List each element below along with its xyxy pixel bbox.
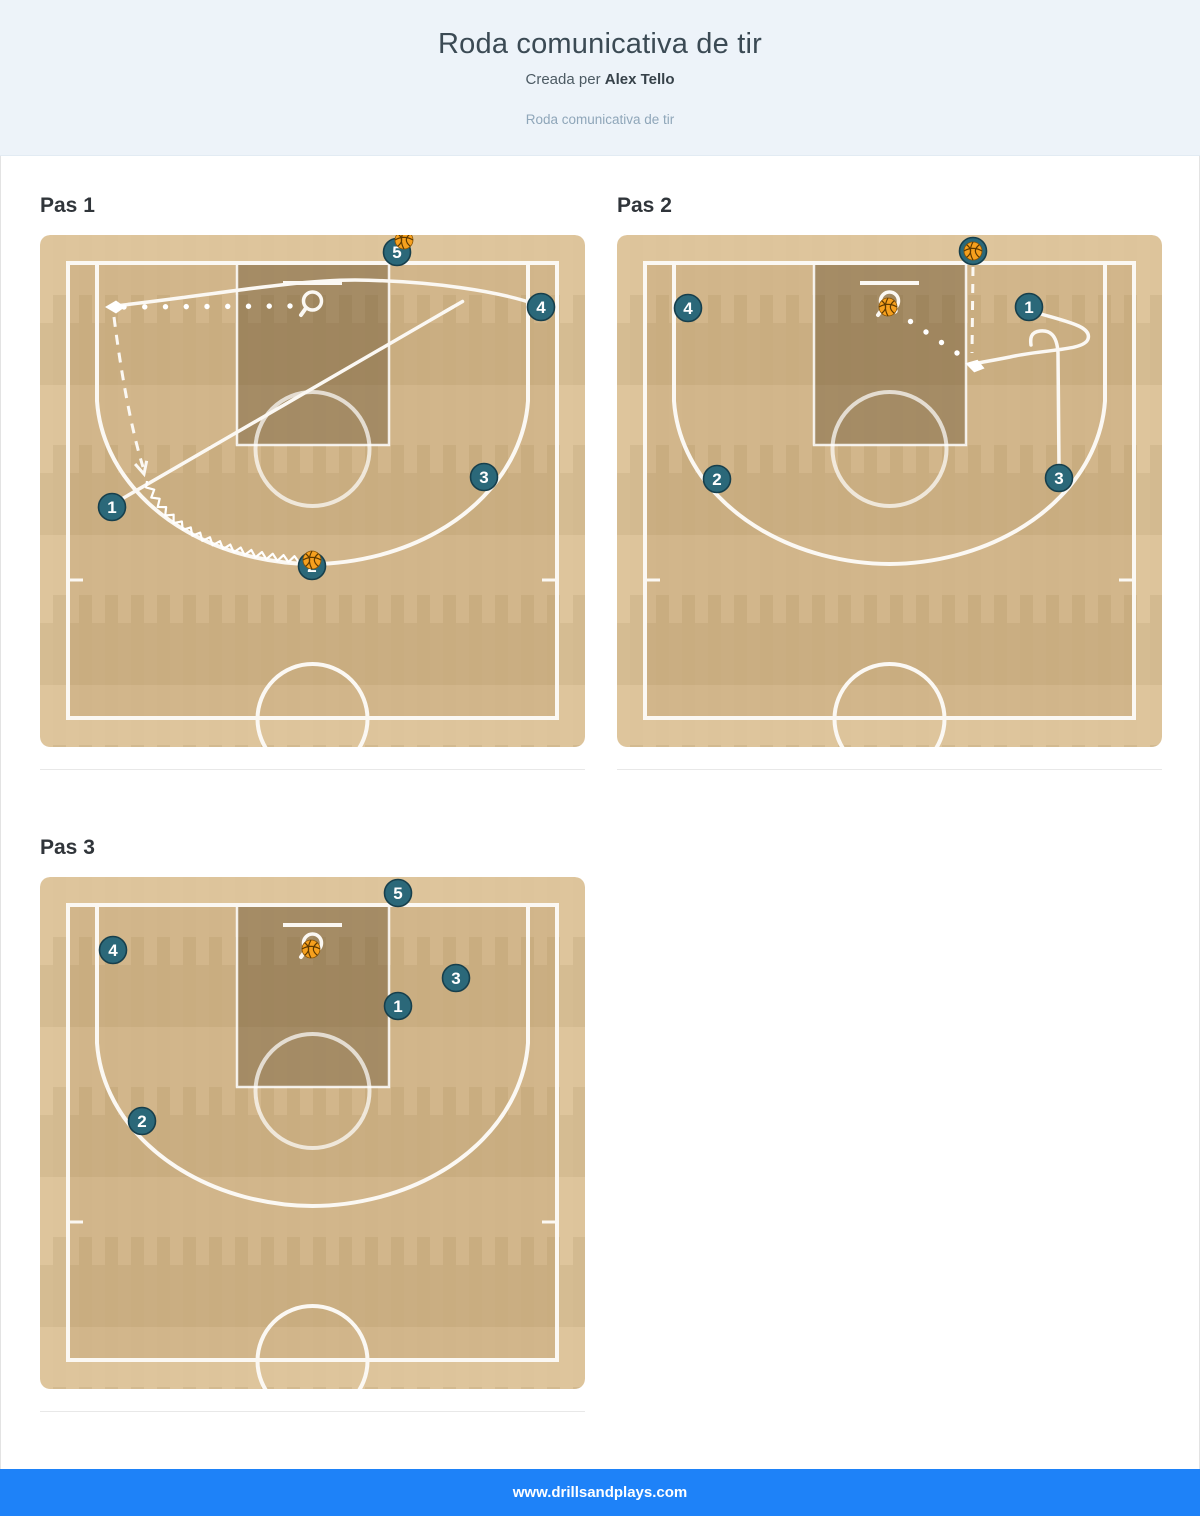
pass-dot [954, 350, 959, 355]
basketball-icon [879, 298, 897, 316]
court-panel-1: 12345 [40, 235, 585, 747]
player-token-3: 3 [1046, 465, 1073, 492]
byline: Creada per Alex Tello [0, 71, 1200, 88]
svg-text:2: 2 [712, 470, 721, 489]
page-header: Roda comunicativa de tir Creada per Alex… [0, 0, 1200, 156]
svg-text:3: 3 [479, 468, 488, 487]
svg-text:4: 4 [108, 941, 118, 960]
player-token-1: 1 [385, 993, 412, 1020]
svg-text:3: 3 [451, 969, 460, 988]
pass-dot [142, 304, 147, 309]
pass-dot [923, 329, 928, 334]
svg-text:1: 1 [107, 498, 116, 517]
court-diagram-3: 12345 [40, 877, 585, 1389]
svg-text:1: 1 [1024, 298, 1033, 317]
step-block-3: Pas 3 12345 [40, 836, 585, 1412]
step-block-2: Pas 2 12345 [617, 194, 1162, 770]
basketball-icon [302, 940, 320, 958]
svg-text:2: 2 [137, 1112, 146, 1131]
pass-dot [267, 303, 272, 308]
author-name: Alex Tello [605, 71, 675, 88]
svg-text:4: 4 [683, 299, 693, 318]
pass-dot [184, 304, 189, 309]
pass-dot [225, 304, 230, 309]
player-token-2: 2 [704, 466, 731, 493]
step-title: Pas 2 [617, 194, 1162, 218]
court-panel-2: 12345 [617, 235, 1162, 747]
drill-link[interactable]: Roda comunicativa de tir [0, 112, 1200, 127]
footer-bar: www.drillsandplays.com [0, 1469, 1200, 1516]
player-token-4: 4 [100, 937, 127, 964]
pass-dot [287, 303, 292, 308]
player-token-4: 4 [675, 295, 702, 322]
byline-prefix: Creada per [526, 71, 601, 88]
divider [40, 1411, 585, 1412]
svg-text:3: 3 [1054, 469, 1063, 488]
basketball-icon [395, 235, 413, 249]
player-token-1: 1 [1016, 294, 1043, 321]
basketball-icon [303, 551, 321, 569]
player-token-3: 3 [471, 464, 498, 491]
divider [617, 769, 1162, 770]
player-token-1: 1 [99, 494, 126, 521]
svg-text:4: 4 [536, 298, 546, 317]
player-token-3: 3 [443, 965, 470, 992]
step-title: Pas 1 [40, 194, 585, 218]
pass-dot [163, 304, 168, 309]
court-panel-3: 12345 [40, 877, 585, 1389]
player-token-4: 4 [528, 294, 555, 321]
step-block-1: Pas 1 12345 [40, 194, 585, 770]
basketball-icon [964, 242, 982, 260]
page: Roda comunicativa de tir Creada per Alex… [0, 0, 1200, 1516]
court-diagram-2: 12345 [617, 235, 1162, 747]
step-title: Pas 3 [40, 836, 585, 860]
footer-url[interactable]: www.drillsandplays.com [513, 1484, 688, 1501]
pass-dot [246, 304, 251, 309]
pass-dot [939, 340, 944, 345]
court-diagram-1: 12345 [40, 235, 585, 747]
player-token-5: 5 [385, 880, 412, 907]
steps-grid: Pas 1 12345 Pas 2 12345 Pas 3 12345 [0, 194, 1200, 1412]
pass-dot [204, 304, 209, 309]
page-title: Roda comunicativa de tir [0, 0, 1200, 61]
svg-text:5: 5 [393, 884, 402, 903]
svg-text:1: 1 [393, 997, 402, 1016]
pass-dot [908, 319, 913, 324]
divider [40, 769, 585, 770]
player-token-2: 2 [129, 1108, 156, 1135]
